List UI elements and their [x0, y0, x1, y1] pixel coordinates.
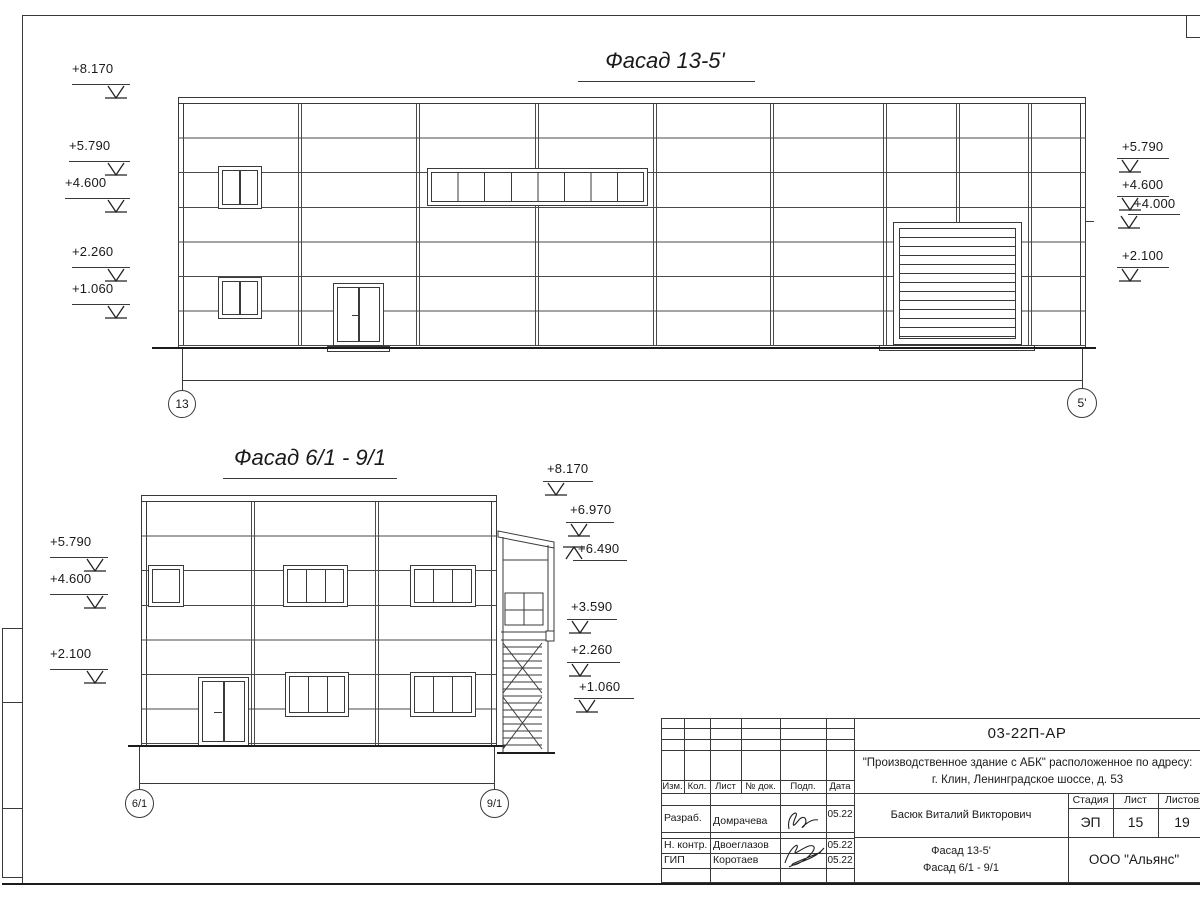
- elevation-arrow-down-icon: [104, 199, 128, 214]
- grid-axis-label: 13: [175, 397, 188, 411]
- elevation-mark-label: +4.600: [1122, 177, 1163, 192]
- frame-corner-box: [1186, 15, 1200, 38]
- elevation-mark-label: +8.170: [72, 61, 113, 76]
- facade1-window-lower-left-sash: [222, 281, 258, 315]
- tb-project-line1: "Производственное здание с АБК" располож…: [863, 755, 1193, 772]
- frame-top-line: [22, 15, 1186, 16]
- tb-doc-number: 03-22П-АР: [854, 718, 1200, 750]
- facade1-grid-bubble-right: 5': [1067, 388, 1097, 418]
- elevation-mark-label: +2.260: [72, 244, 113, 259]
- tb-project-name: "Производственное здание с АБК" располож…: [857, 751, 1198, 793]
- title-block: Изм. Кол. Лист № док. Подп. Дата Разраб.…: [661, 718, 1200, 883]
- facade2-window-lower-mid-panes: [289, 676, 345, 713]
- tb-sheet-value: 15: [1113, 808, 1158, 837]
- facade1-ribbon-window: [427, 168, 648, 206]
- elevation-mark-label: +4.600: [65, 175, 106, 190]
- tb-date-gip: 05.22: [826, 853, 854, 868]
- elevation-arrow-down-icon: [544, 482, 568, 497]
- tb-drawing-title-line1: Фасад 13-5': [931, 843, 991, 860]
- tb-name-developer: Домрачева: [713, 808, 779, 835]
- facade1-dimension-line: [182, 380, 1082, 381]
- tb-project-line2: г. Клин, Ленинградское шоссе, д. 53: [932, 772, 1123, 789]
- facade1-column-line-7-stub: [956, 104, 960, 222]
- facade2-window-lower-mid: [285, 672, 349, 717]
- elevation-mark-label: +1.060: [72, 281, 113, 296]
- margin-cell-line-1: [2, 628, 22, 629]
- elevation-mark-label: +5.790: [1122, 139, 1163, 154]
- facade2-door-leafs: [202, 681, 245, 742]
- facade2-door: [198, 677, 249, 746]
- facade2-window-upper-right: [410, 565, 476, 607]
- elevation-arrow-down-icon: [567, 523, 591, 538]
- facade2-grid-bubble-left: 6/1: [125, 789, 154, 818]
- elevation-mark-label: +4.000: [1134, 196, 1175, 211]
- window-mullion: [239, 171, 241, 204]
- elevation-arrow-down-icon: [104, 85, 128, 100]
- margin-cell-line-3: [2, 808, 22, 809]
- tb-drawing-title: Фасад 13-5' Фасад 6/1 - 9/1: [854, 837, 1068, 882]
- facade1-column-line-6: [883, 104, 887, 346]
- facade1-title-underline: [578, 81, 755, 82]
- tb-col-list: Лист: [710, 780, 741, 793]
- facade1-window-upper-left: [218, 166, 262, 209]
- tb-role-developer: Разраб.: [664, 805, 709, 832]
- facade2-window-square-sash: [152, 569, 180, 603]
- elevation-mark-label: +2.100: [1122, 248, 1163, 263]
- tb-sheets-value: 19: [1158, 808, 1200, 837]
- facade2-window-upper-right-panes: [414, 569, 472, 603]
- facade1-window-lower-left: [218, 277, 262, 319]
- tb-company-name: ООО "Альянс": [1068, 837, 1200, 882]
- elevation-mark-label: +6.970: [570, 502, 611, 517]
- grid-axis-label: 6/1: [132, 798, 147, 810]
- tb-role-gip: ГИП: [664, 853, 710, 868]
- facade1-column-line-4: [653, 104, 657, 346]
- facade2-window-square: [148, 565, 184, 607]
- tb-stage-label: Стадия: [1068, 793, 1113, 808]
- facade2-title-underline: [223, 478, 397, 479]
- elevation-arrow-down-icon: [83, 595, 107, 610]
- tb-chief-name: Басюк Виталий Викторович: [854, 793, 1068, 837]
- tb-sheets-label: Листов: [1158, 793, 1200, 808]
- drawing-sheet: Фасад 13-5' 13 5' +8.170 +5.790 +4.600: [0, 0, 1200, 900]
- signature-icon: [780, 837, 826, 869]
- elevation-mark-label: +5.790: [50, 534, 91, 549]
- grid-axis-label: 5': [1078, 396, 1087, 410]
- tb-col-doc: № док.: [741, 780, 780, 793]
- facade2-grid-bubble-right: 9/1: [480, 789, 509, 818]
- facade1-title: Фасад 13-5': [565, 48, 765, 74]
- window-mullion: [239, 282, 241, 314]
- grid-axis-label: 9/1: [487, 798, 502, 810]
- frame-left-line: [22, 15, 23, 883]
- facade1-column-line-5: [770, 104, 774, 346]
- facade1-grid-stub-right: [1082, 349, 1083, 389]
- elevation-mark-label: +3.590: [571, 599, 612, 614]
- signature-icon: [782, 807, 824, 833]
- tb-col-kol: Кол.: [684, 780, 710, 793]
- margin-cell-line-2: [2, 702, 22, 703]
- tb-name-ncontrol: Двоеглазов: [713, 838, 779, 853]
- tb-line: [710, 718, 711, 883]
- elevation-mark-label: +5.790: [69, 138, 110, 153]
- frame-bottom-line: [2, 883, 1200, 885]
- tb-date-developer: 05.22: [826, 805, 854, 825]
- elevation-arrow-up-icon: [562, 545, 586, 560]
- facade1-column-line-1: [298, 104, 302, 346]
- elevation-mark-label: +2.260: [571, 642, 612, 657]
- facade2-window-upper-mid-panes: [287, 569, 344, 603]
- facade1-roller-gate-slats: [899, 228, 1016, 339]
- facade1-window-upper-left-sash: [222, 170, 258, 205]
- tb-drawing-title-line2: Фасад 6/1 - 9/1: [923, 860, 999, 877]
- door-meeting-stile: [223, 682, 225, 741]
- facade2-column-line-2: [375, 502, 379, 745]
- facade1-ground-line: [152, 347, 1096, 349]
- facade1-grid-stub-left: [182, 349, 183, 391]
- facade1-ribbon-window-panes: [431, 172, 644, 202]
- facade2-title: Фасад 6/1 - 9/1: [210, 445, 410, 471]
- elevation-arrow-down-icon: [1118, 268, 1142, 283]
- elevation-arrow-down-icon: [104, 162, 128, 177]
- facade1-door-handle-mark: [352, 315, 359, 316]
- elevation-mark-line: [573, 560, 627, 561]
- facade1-roller-gate: [893, 222, 1022, 345]
- facade2-door-handle-mark: [214, 712, 222, 713]
- facade1-column-line-3: [535, 104, 539, 346]
- tb-col-podp: Подп.: [780, 780, 826, 793]
- elevation-mark-label: +4.600: [50, 571, 91, 586]
- elevation-mark-label: +8.170: [547, 461, 588, 476]
- tb-col-izm: Изм.: [661, 780, 684, 793]
- facade1-column-line-2: [416, 104, 420, 346]
- margin-cell-line-4: [2, 877, 22, 878]
- tb-date-ncontrol: 05.22: [826, 838, 854, 853]
- facade2-window-lower-right-panes: [414, 676, 472, 713]
- elevation-arrow-down-icon: [104, 305, 128, 320]
- facade1-column-line-8: [1028, 104, 1032, 346]
- elevation-arrow-down-icon: [83, 670, 107, 685]
- facade1-grid-bubble-left: 13: [168, 390, 196, 418]
- tb-col-data: Дата: [826, 780, 854, 793]
- elevation-mark-label: +1.060: [579, 679, 620, 694]
- tb-name-gip: Коротаев: [713, 853, 779, 868]
- elevation-arrow-down-icon: [1118, 159, 1142, 174]
- tb-line: [661, 718, 662, 883]
- facade2-ground-line: [128, 745, 505, 747]
- tb-stage-value: ЭП: [1068, 808, 1113, 837]
- elevation-arrow-down-icon: [568, 663, 592, 678]
- tb-sheet-label: Лист: [1113, 793, 1158, 808]
- tb-role-ncontrol: Н. контр.: [664, 838, 710, 853]
- facade2-window-upper-mid: [283, 565, 348, 607]
- elevation-arrow-down-icon: [568, 620, 592, 635]
- facade2-column-line-1: [251, 502, 255, 745]
- facade2-stair-tower: [497, 525, 555, 755]
- elevation-arrow-down-icon: [575, 699, 599, 714]
- stair-canopy: [498, 531, 554, 548]
- elevation-arrow-down-icon: [1117, 215, 1141, 230]
- facade2-dimension-line: [139, 783, 495, 784]
- margin-cells-outer-line: [2, 628, 3, 877]
- stair-treads: [503, 647, 542, 745]
- facade1-level-tick: [1086, 221, 1094, 222]
- facade2-window-lower-right: [410, 672, 476, 717]
- tb-line: [661, 882, 1200, 883]
- elevation-mark-label: +2.100: [50, 646, 91, 661]
